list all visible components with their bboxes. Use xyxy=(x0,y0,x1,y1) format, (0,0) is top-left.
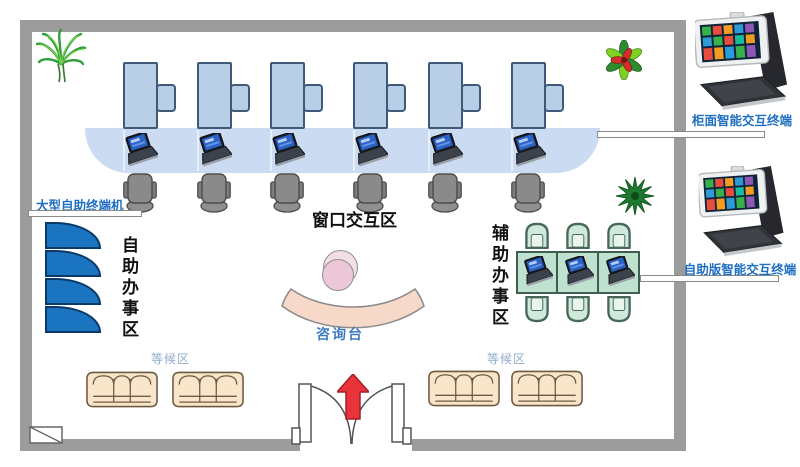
laptop-icon xyxy=(269,133,305,167)
laptop-icon xyxy=(352,133,388,167)
sofa-icon xyxy=(85,371,159,408)
self-smart-terminal-label: 自助版智能交互终端 xyxy=(680,259,800,278)
window-desk xyxy=(123,62,158,129)
self-smart-terminal-device xyxy=(694,166,790,258)
waiting-area-left-label: 等候区 xyxy=(151,350,190,367)
waiting-area-right-label: 等候区 xyxy=(487,350,526,367)
assist-table-divider xyxy=(556,252,558,293)
wall-left xyxy=(20,20,32,451)
laptop-icon xyxy=(122,133,158,167)
assist-table-divider xyxy=(597,252,599,293)
entry-arrow-icon xyxy=(337,374,369,420)
assist-chair-icon xyxy=(606,296,632,323)
sofa-icon xyxy=(510,370,584,407)
office-chair-icon xyxy=(428,173,462,213)
desk-extension xyxy=(386,84,406,112)
laptop-icon xyxy=(196,133,232,167)
consult-desk-shape xyxy=(281,283,425,329)
assist-chair-icon xyxy=(524,296,550,323)
wall-top xyxy=(20,20,686,32)
self-service-kiosk xyxy=(45,250,101,277)
corner-fixture xyxy=(29,426,63,444)
window-zone-label: 窗口交互区 xyxy=(312,206,397,231)
sofa-icon xyxy=(171,371,245,408)
window-desk xyxy=(197,62,232,129)
wall-bottom-right xyxy=(412,439,686,451)
office-chair-icon xyxy=(511,173,545,213)
desk-extension xyxy=(156,84,176,112)
laptop-icon xyxy=(427,133,463,167)
assist-chair-icon xyxy=(565,222,591,249)
palm-plant-icon xyxy=(34,28,88,84)
laptop-icon xyxy=(521,256,553,287)
sofa-icon xyxy=(427,370,501,407)
desk-extension xyxy=(544,84,564,112)
window-desk xyxy=(270,62,305,129)
window-desk xyxy=(511,62,546,129)
callout-bar-large-terminal xyxy=(28,210,142,217)
counter-smart-terminal-device xyxy=(694,12,790,112)
assist-zone-label: 辅助办事区 xyxy=(489,224,506,339)
laptop-icon xyxy=(510,133,546,167)
office-chair-icon xyxy=(197,173,231,213)
laptop-icon xyxy=(603,256,635,287)
desk-extension xyxy=(461,84,481,112)
assist-chair-icon xyxy=(524,222,550,249)
callout-bar-counter-terminal xyxy=(597,131,765,138)
wall-right xyxy=(674,20,686,451)
desk-extension xyxy=(230,84,250,112)
window-desk xyxy=(428,62,463,129)
assist-chair-icon xyxy=(606,222,632,249)
floor-plan-canvas: 窗口交互区 大型自助终端机 自助办事区 咨询台 辅助办事区 等候区 等候区 xyxy=(0,0,800,467)
window-desk xyxy=(353,62,388,129)
office-chair-icon xyxy=(270,173,304,213)
self-service-kiosk xyxy=(45,222,101,249)
self-service-kiosk xyxy=(45,278,101,305)
assist-chair-icon xyxy=(565,296,591,323)
self-service-kiosk xyxy=(45,306,101,333)
desk-extension xyxy=(303,84,323,112)
counter-smart-terminal-label: 柜面智能交互终端 xyxy=(686,110,798,129)
flower-plant-icon xyxy=(603,40,645,80)
spiky-plant-icon xyxy=(615,176,655,216)
laptop-icon xyxy=(562,256,594,287)
self-service-zone-label: 自助办事区 xyxy=(119,236,136,351)
consult-desk-label: 咨询台 xyxy=(305,324,375,344)
